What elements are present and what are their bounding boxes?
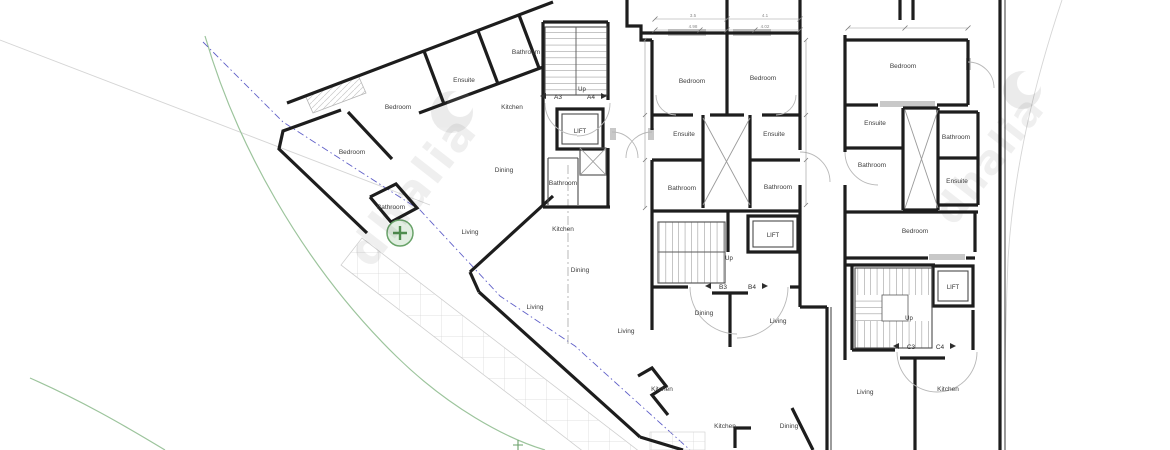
room-label: Bathroom: [377, 204, 405, 211]
room-label: Living: [770, 318, 787, 325]
room-label: Living: [462, 229, 479, 236]
room-label: Living: [527, 304, 544, 311]
dimension-label: 4.02: [761, 24, 770, 29]
room-label: Bathroom: [942, 134, 970, 141]
room-label: Bedroom: [890, 63, 916, 70]
stair-c-treads-top: [855, 268, 932, 295]
lift-label: LIFT: [947, 285, 960, 291]
room-label: Kitchen: [501, 104, 523, 111]
room-label: Dining: [495, 167, 514, 174]
room-label: Kitchen: [937, 386, 959, 393]
walls-b-block: [627, 0, 827, 450]
dimension-label: 4.98: [689, 24, 698, 29]
room-label: Bedroom: [679, 78, 705, 85]
room-label: Bathroom: [512, 49, 540, 56]
floor-plan-canvas: 3.5 4.1 4.98 4.02 dhalia dhalia Bedroom …: [0, 0, 1170, 450]
room-label: Kitchen: [552, 226, 574, 233]
door-direction-arrow-right: [950, 343, 956, 349]
unit-door-label: A4: [587, 94, 595, 101]
unit-door-label: C3: [907, 344, 916, 351]
stair-c-well: [882, 295, 908, 321]
watermark-text: dhalia: [925, 87, 1054, 234]
room-label: Kitchen: [714, 423, 736, 430]
room-label: Dining: [780, 423, 799, 430]
floor-plan: 3.5 4.1 4.98 4.02 dhalia dhalia Bedroom …: [0, 0, 1170, 450]
stair-c-treads-left: [855, 295, 882, 321]
stairs: [545, 27, 932, 348]
room-label: Bathroom: [549, 180, 577, 187]
lift-label: LIFT: [767, 233, 780, 239]
unit-door-label: C4: [936, 344, 945, 351]
stair-up-label: Up: [725, 256, 733, 262]
dimension-lines: 3.5 4.1 4.98 4.02: [643, 13, 971, 210]
room-label: Bedroom: [339, 149, 365, 156]
walls-thin: [545, 0, 1005, 450]
room-label: Bathroom: [764, 184, 792, 191]
room-label: Ensuite: [763, 131, 785, 138]
room-label: Living: [618, 328, 635, 335]
unit-door-label: A3: [554, 94, 562, 101]
room-label: Bedroom: [902, 228, 928, 235]
walls-a-block: [279, 2, 683, 450]
walls-c-block: [845, 0, 1000, 450]
door-direction-arrow-left: [705, 283, 711, 289]
lift-label: LIFT: [574, 129, 587, 135]
stair-c-treads-bottom: [855, 321, 932, 348]
room-label: Bedroom: [385, 104, 411, 111]
room-label: Bedroom: [750, 75, 776, 82]
room-label: Ensuite: [946, 178, 968, 185]
room-label: Dining: [695, 310, 714, 317]
room-label: Ensuite: [864, 120, 886, 127]
room-label: Kitchen: [651, 386, 673, 393]
stair-up-label: Up: [578, 87, 586, 93]
room-label: Ensuite: [673, 131, 695, 138]
room-label: Dining: [571, 267, 590, 274]
room-label: Living: [857, 389, 874, 396]
room-label: Bathroom: [858, 162, 886, 169]
unit-door-label: B4: [748, 284, 756, 291]
room-label: Ensuite: [453, 77, 475, 84]
stair-up-label: Up: [905, 316, 913, 322]
dimension-label: 4.1: [762, 13, 769, 18]
unit-door-label: B3: [719, 284, 727, 291]
room-label: Bathroom: [668, 185, 696, 192]
stair-b-treads: [658, 222, 725, 283]
door-direction-arrow-right: [762, 283, 768, 289]
watermark-text: dhalia: [337, 104, 489, 277]
dimension-label: 3.5: [690, 13, 697, 18]
